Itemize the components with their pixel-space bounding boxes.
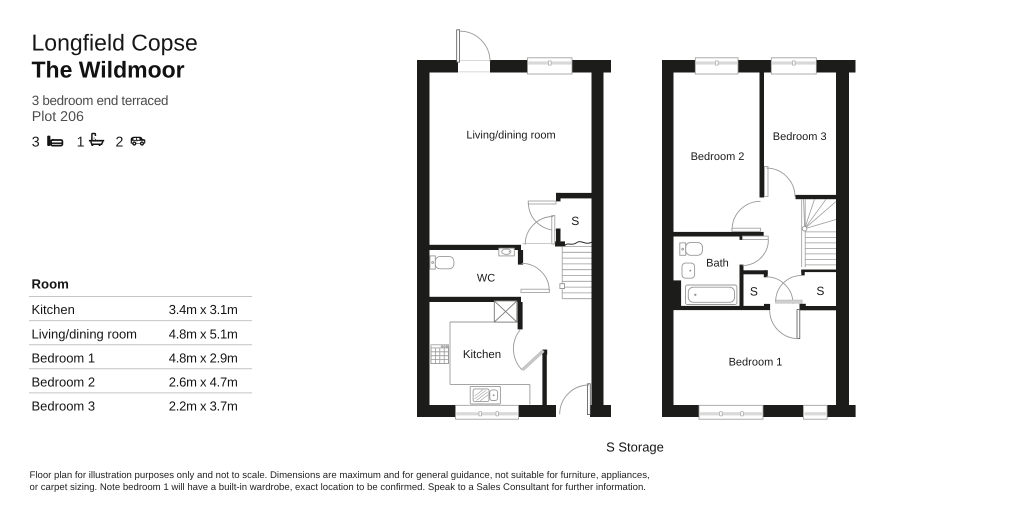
svg-text:3.4m x 3.1m: 3.4m x 3.1m — [169, 302, 238, 317]
svg-text:Bedroom 3: Bedroom 3 — [773, 131, 827, 143]
svg-text:2.2m x 3.7m: 2.2m x 3.7m — [169, 399, 238, 414]
svg-text:Kitchen: Kitchen — [32, 302, 75, 317]
svg-text:The Wildmoor: The Wildmoor — [32, 57, 185, 83]
svg-text:Kitchen: Kitchen — [463, 349, 501, 361]
svg-text:Bedroom 1: Bedroom 1 — [729, 356, 783, 368]
svg-text:3: 3 — [32, 134, 40, 150]
svg-text:Bedroom 1: Bedroom 1 — [32, 350, 96, 365]
svg-text:2: 2 — [116, 134, 124, 150]
svg-text:Bedroom 2: Bedroom 2 — [32, 375, 96, 390]
svg-text:1: 1 — [77, 134, 85, 150]
svg-text:4.8m x 5.1m: 4.8m x 5.1m — [169, 326, 238, 341]
svg-text:Living/dining room: Living/dining room — [32, 326, 138, 341]
svg-text:4.8m x 2.9m: 4.8m x 2.9m — [169, 350, 238, 365]
svg-text:3 bedroom end terraced: 3 bedroom end terraced — [32, 93, 168, 108]
svg-text:S: S — [571, 214, 579, 228]
svg-text:or carpet sizing. Note bedroom: or carpet sizing. Note bedroom 1 will ha… — [30, 482, 646, 493]
svg-text:Floor plan for illustration pu: Floor plan for illustration purposes onl… — [30, 470, 650, 481]
svg-text:Plot 206: Plot 206 — [32, 109, 84, 125]
svg-text:WC: WC — [477, 273, 495, 285]
svg-text:S Storage: S Storage — [606, 439, 664, 454]
svg-text:Bedroom 2: Bedroom 2 — [691, 151, 745, 163]
svg-text:Bath: Bath — [706, 257, 729, 269]
svg-text:S: S — [816, 284, 824, 298]
svg-text:Bedroom 3: Bedroom 3 — [32, 399, 96, 414]
svg-text:Living/dining room: Living/dining room — [466, 129, 555, 141]
svg-text:2.6m x 4.7m: 2.6m x 4.7m — [169, 375, 238, 390]
svg-text:Room: Room — [32, 276, 69, 291]
svg-text:S: S — [750, 285, 758, 299]
svg-text:Longfield Copse: Longfield Copse — [32, 30, 198, 56]
